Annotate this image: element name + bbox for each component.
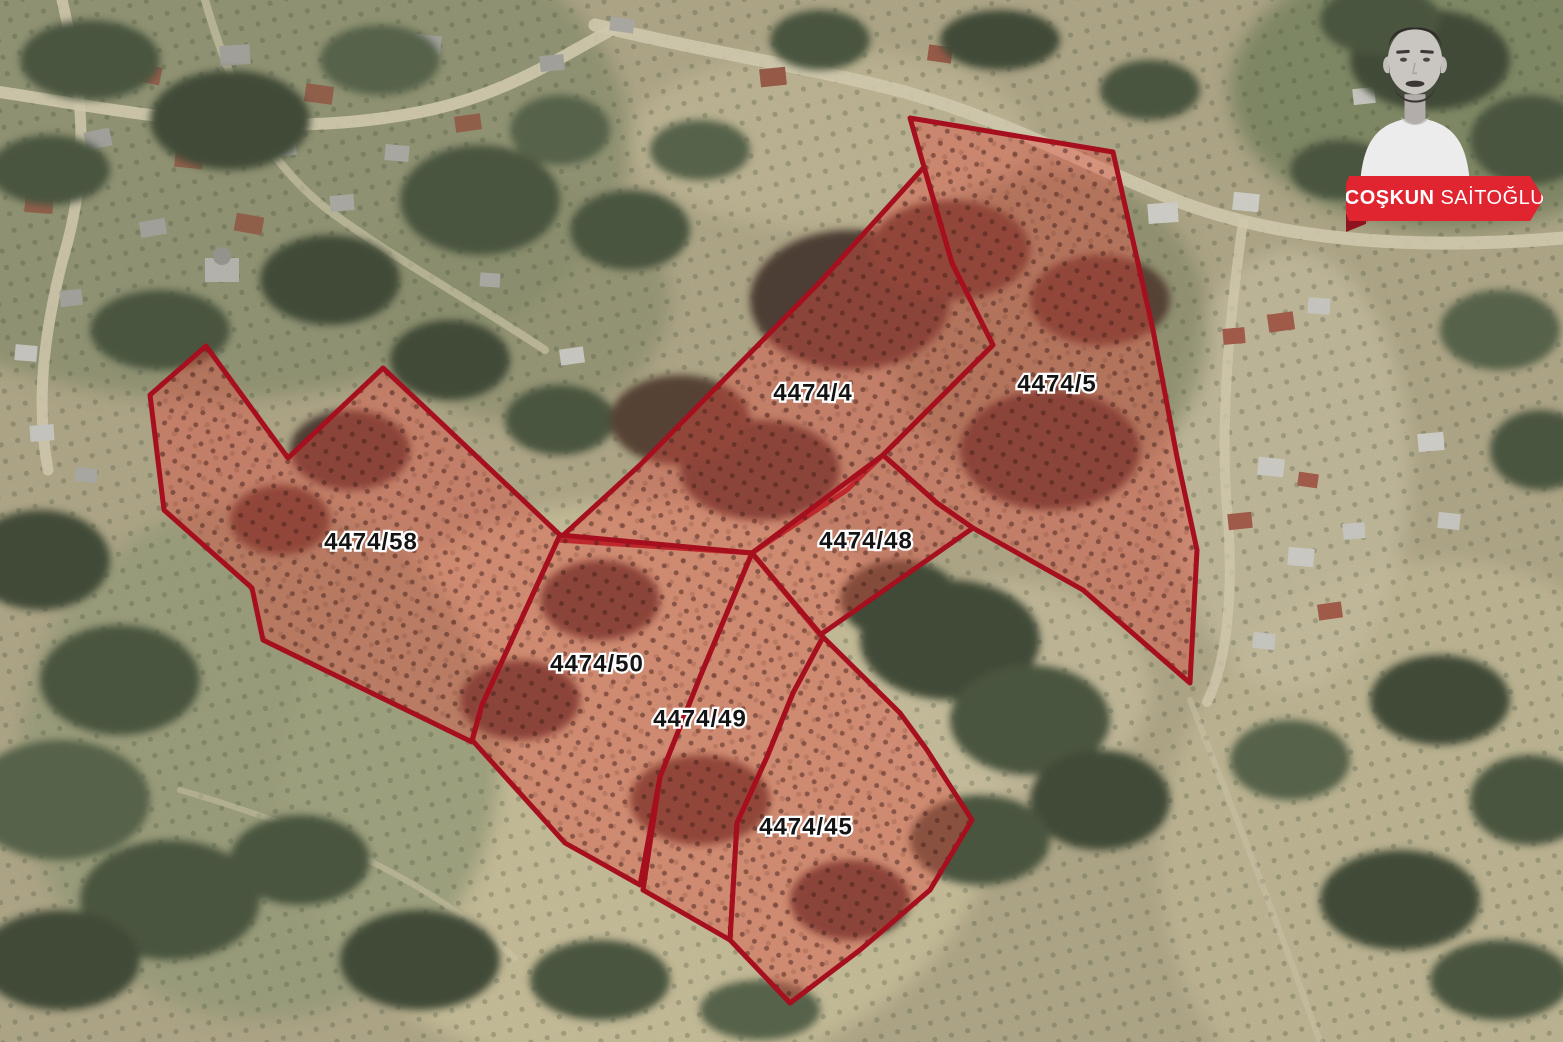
agent-photo: [1340, 0, 1490, 178]
aerial-imagery: 4474/584474/44474/54474/484474/504474/49…: [0, 0, 1563, 1042]
parcel-label-4474-45: 4474/45: [759, 814, 853, 841]
agent-first-name: COŞKUN: [1345, 187, 1435, 210]
parcel-label-4474-50: 4474/50: [550, 651, 644, 678]
parcel-label-4474-48: 4474/48: [819, 528, 913, 555]
parcel-label-4474-5: 4474/5: [1017, 371, 1096, 398]
agent-badge: COŞKUN SAİTOĞLU: [1340, 0, 1563, 245]
agent-last-name: SAİTOĞLU: [1440, 187, 1545, 210]
agent-name-ribbon: COŞKUN SAİTOĞLU: [1346, 176, 1544, 221]
parcel-label-4474-4: 4474/4: [773, 380, 852, 407]
parcel-label-4474-49: 4474/49: [653, 706, 747, 733]
parcel-label-4474-58: 4474/58: [324, 529, 418, 556]
satellite-map: 4474/584474/44474/54474/484474/504474/49…: [0, 0, 1563, 1042]
